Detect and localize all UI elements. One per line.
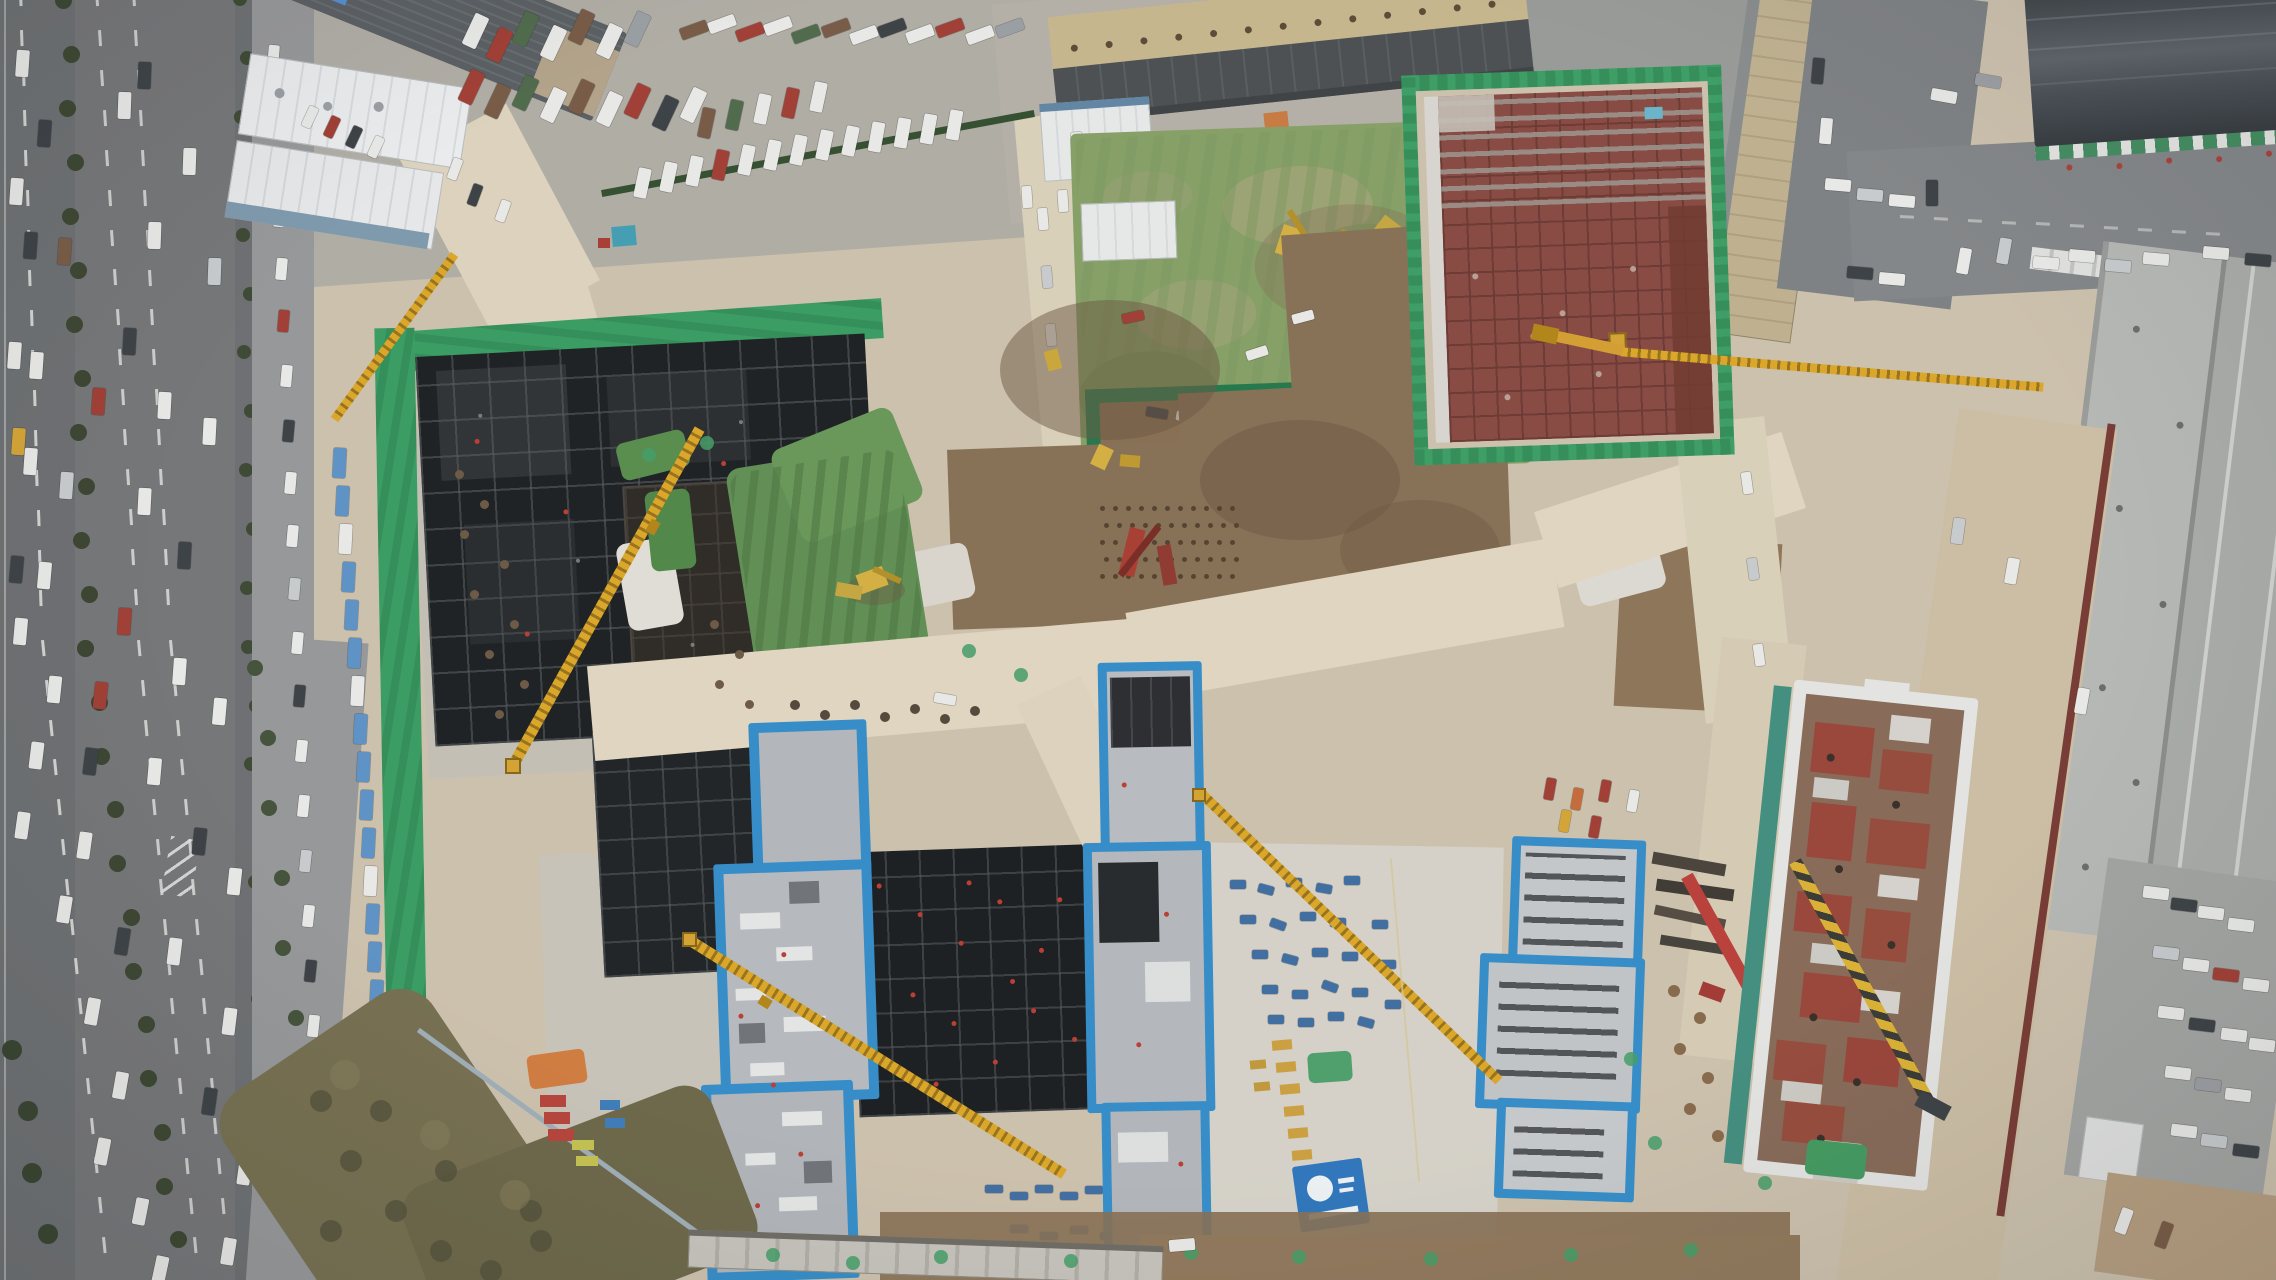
aerial-construction-photo	[0, 0, 2276, 1280]
photo-vignette	[0, 0, 2276, 1280]
